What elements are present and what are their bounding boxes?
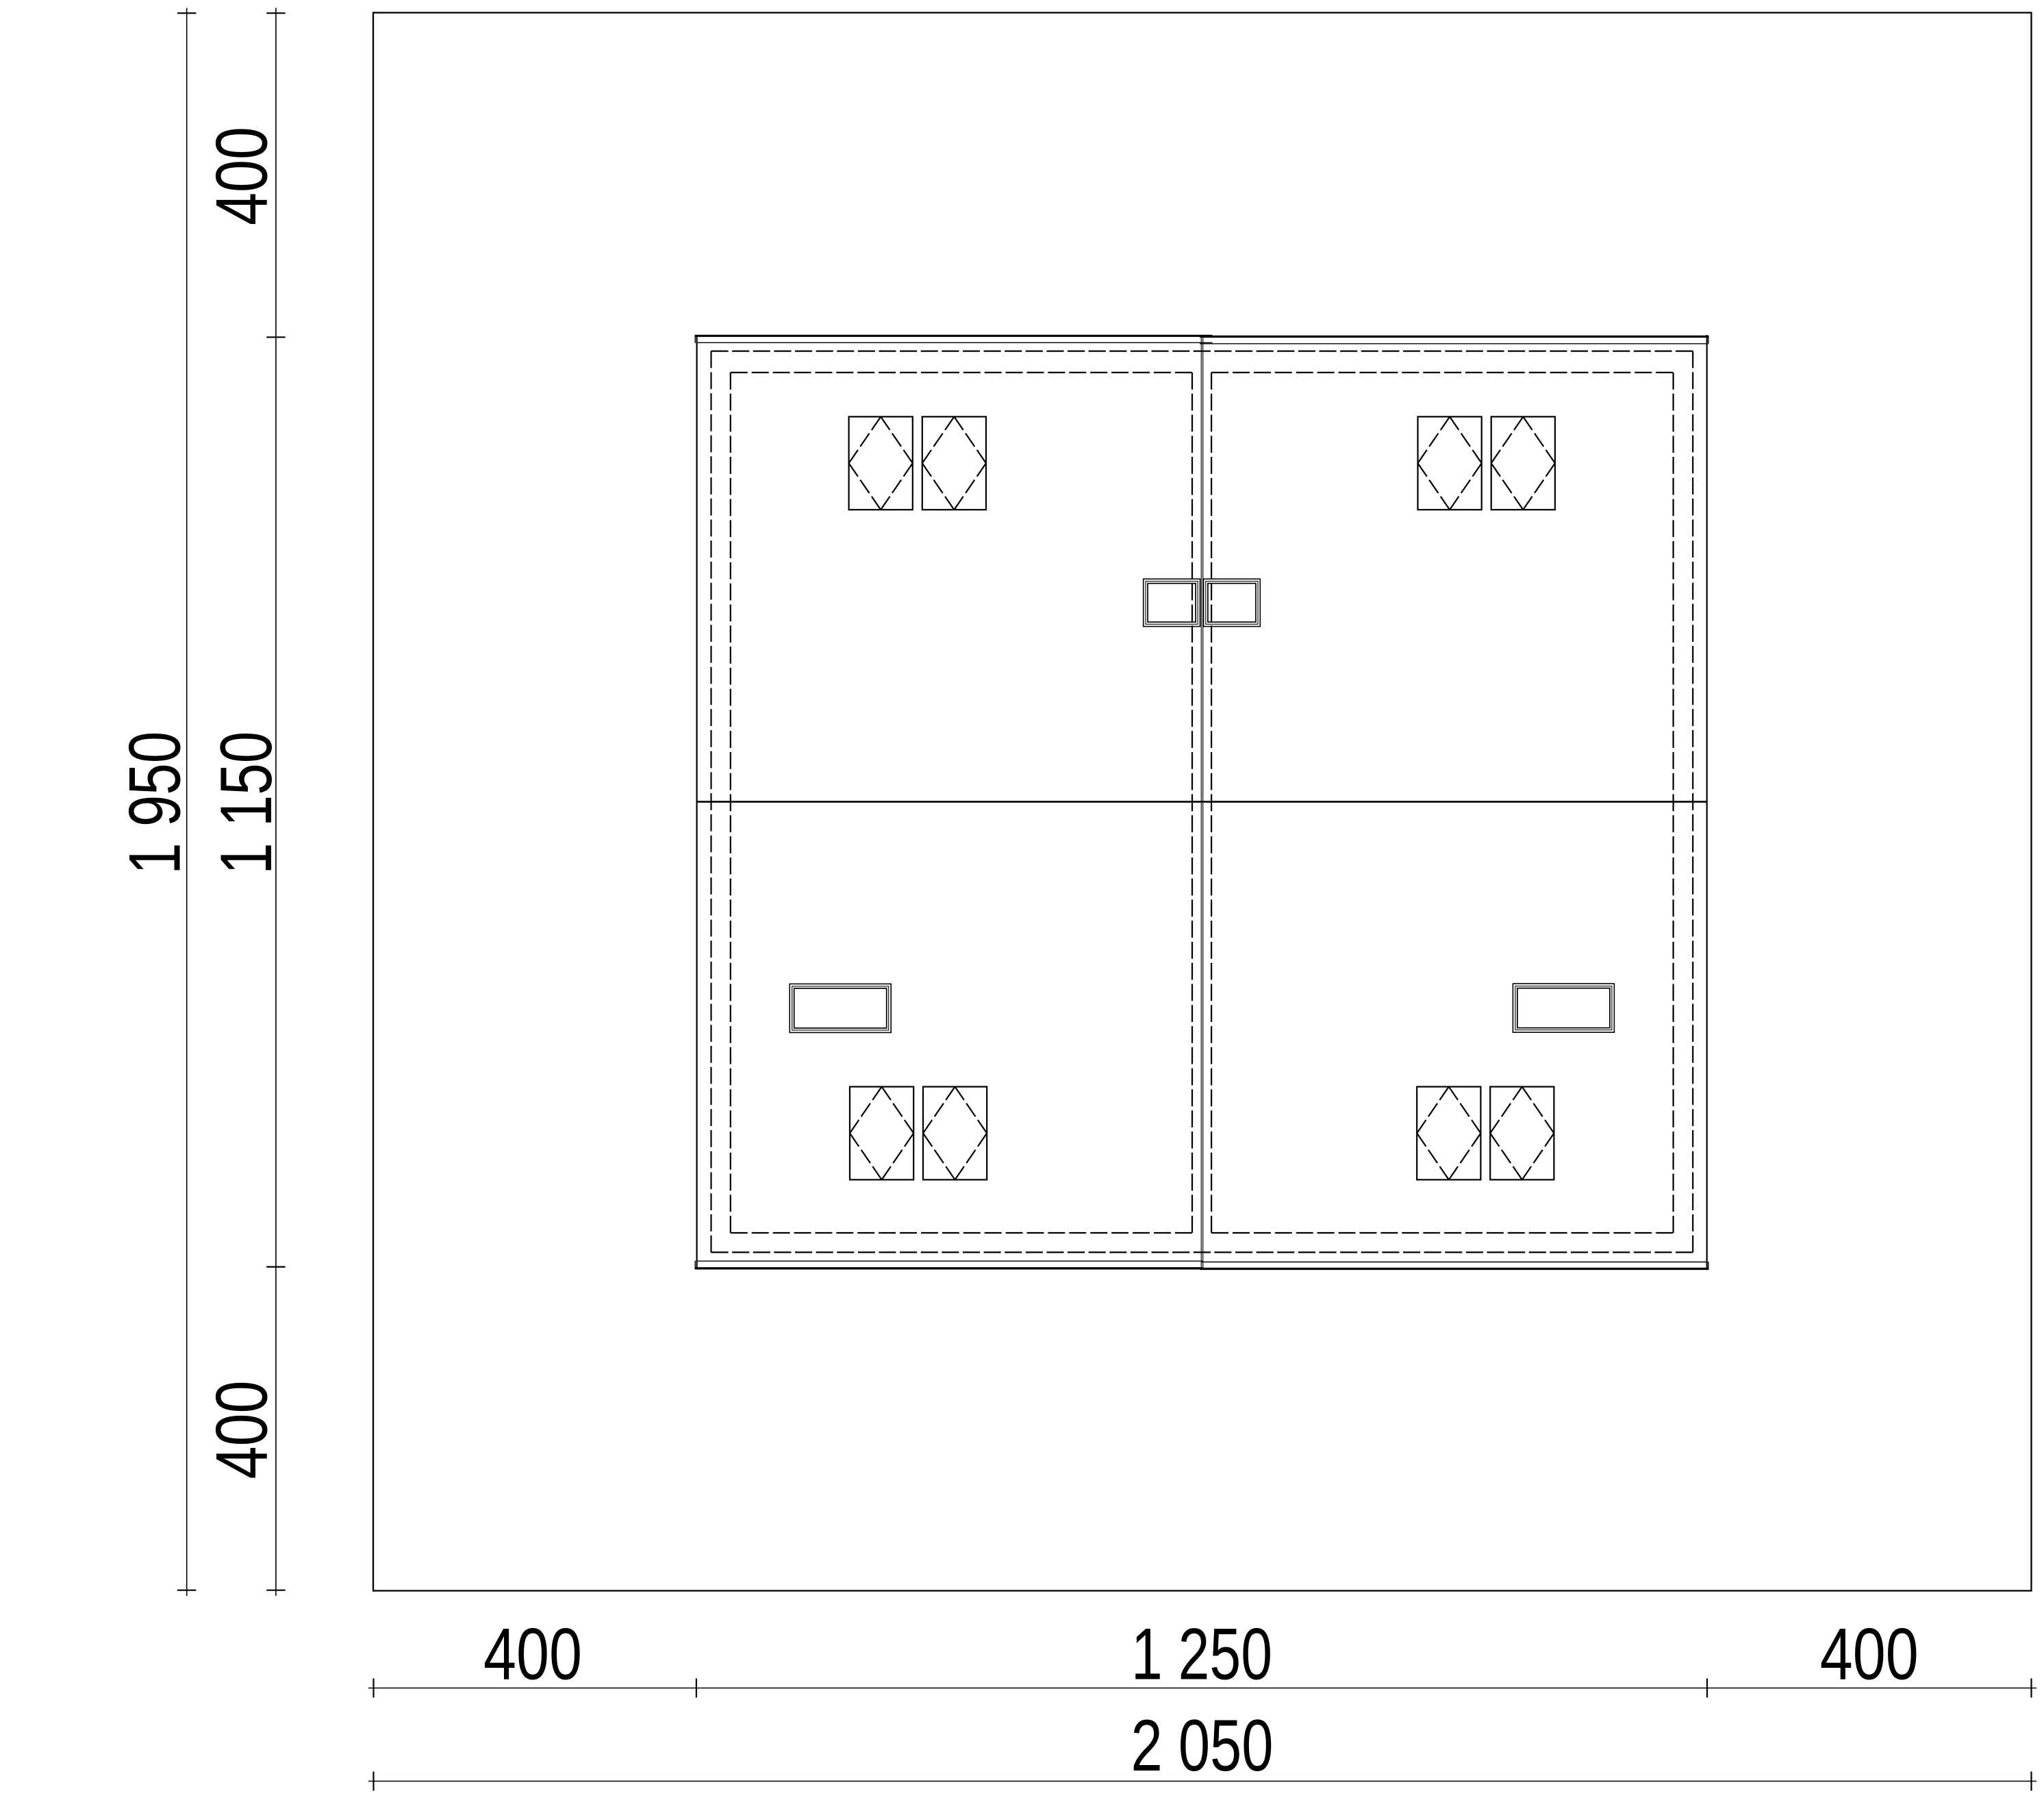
- svg-text:400: 400: [1820, 1613, 1919, 1695]
- svg-text:400: 400: [483, 1613, 582, 1695]
- svg-text:400: 400: [201, 1381, 283, 1479]
- svg-text:400: 400: [201, 127, 283, 225]
- svg-text:2 050: 2 050: [1131, 1704, 1274, 1786]
- svg-text:1 250: 1 250: [1131, 1613, 1272, 1695]
- svg-text:1 150: 1 150: [205, 732, 287, 875]
- svg-text:1 950: 1 950: [113, 732, 195, 875]
